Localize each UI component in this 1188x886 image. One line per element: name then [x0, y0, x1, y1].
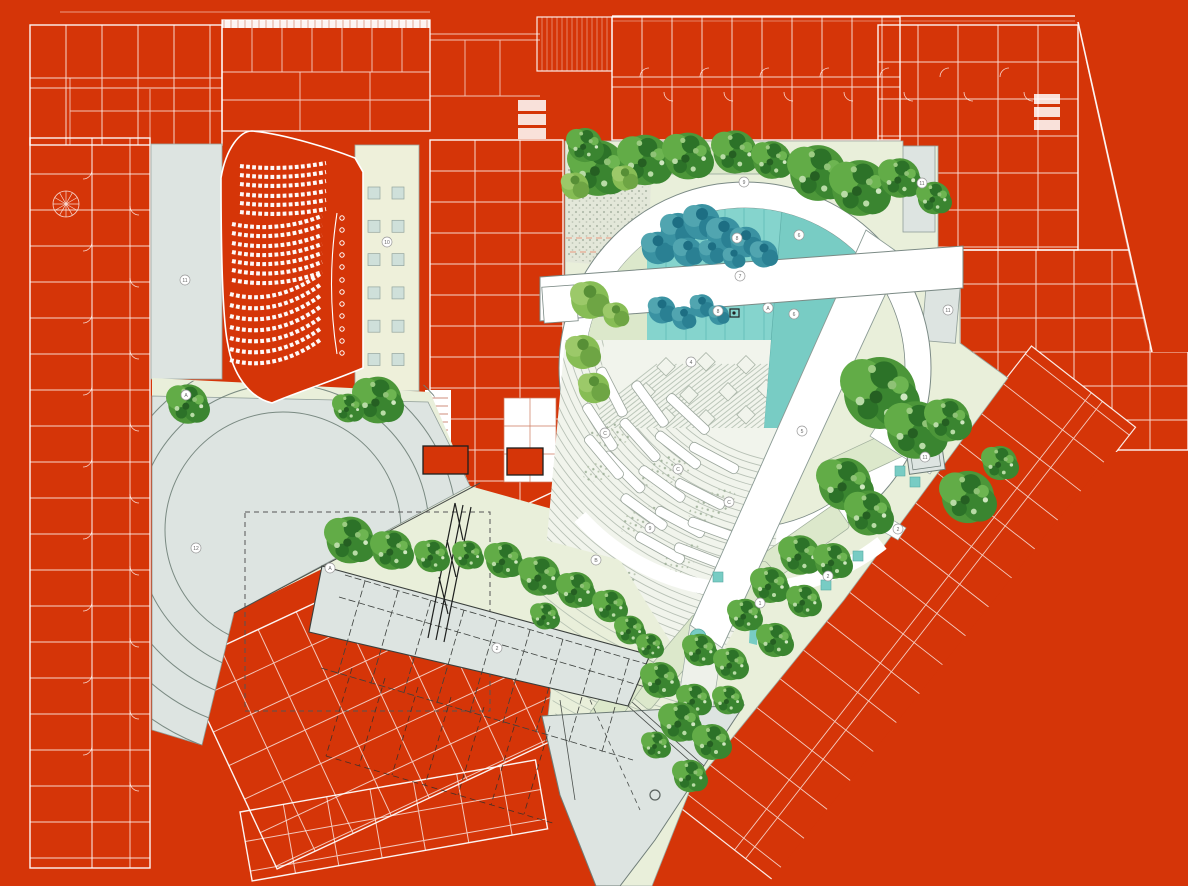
svg-text:2: 2 — [897, 527, 900, 533]
svg-text:8: 8 — [736, 236, 739, 242]
svg-text:C: C — [603, 431, 607, 437]
svg-text:1: 1 — [759, 601, 762, 607]
svg-text:7: 7 — [739, 274, 742, 280]
svg-text:6: 6 — [798, 233, 801, 239]
svg-text:C: C — [676, 467, 680, 473]
svg-text:4: 4 — [690, 360, 693, 366]
svg-text:12: 12 — [193, 546, 199, 552]
svg-text:C: C — [727, 500, 731, 506]
svg-text:9: 9 — [649, 526, 652, 532]
svg-text:9: 9 — [743, 180, 746, 186]
svg-text:6: 6 — [793, 312, 796, 318]
svg-text:11: 11 — [945, 308, 950, 314]
svg-text:11: 11 — [182, 278, 187, 284]
svg-text:11: 11 — [922, 455, 927, 461]
svg-text:2: 2 — [496, 646, 499, 652]
svg-text:8: 8 — [717, 309, 720, 315]
svg-text:5: 5 — [801, 429, 804, 435]
svg-text:10: 10 — [384, 240, 390, 246]
svg-text:11: 11 — [919, 181, 924, 187]
svg-text:2: 2 — [827, 574, 830, 580]
